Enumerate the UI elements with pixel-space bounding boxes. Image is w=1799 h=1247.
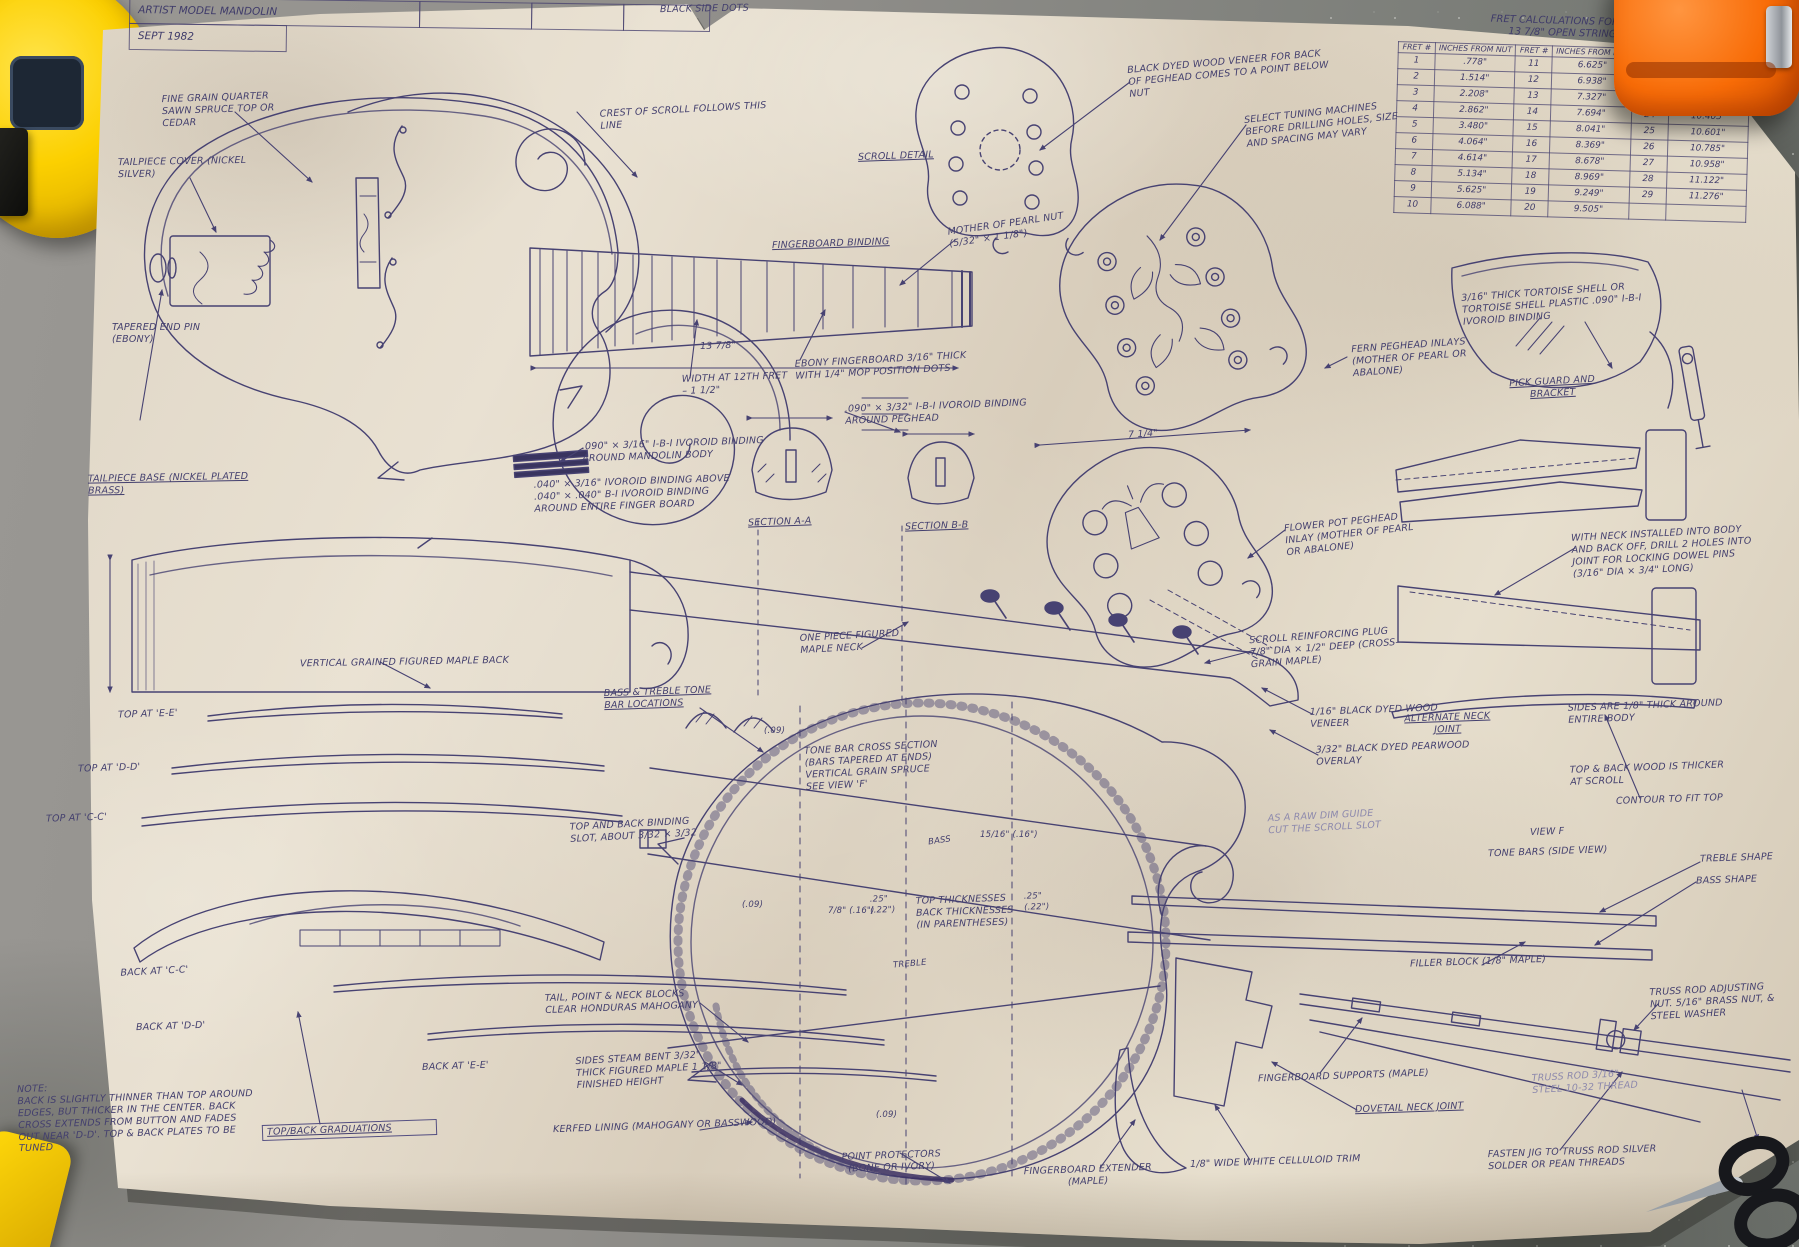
title-block-date: SEPT 1982	[129, 23, 287, 52]
label-tone-bar-locations: BASS & TREBLE TONE BAR LOCATIONS	[604, 684, 730, 712]
orange-tape-measure	[1614, 0, 1799, 116]
label-dim-1516: 15/16" (.16")	[980, 830, 1048, 841]
label-dim-09: (.09)	[742, 900, 782, 911]
label-dim-09: (.09)	[876, 1110, 916, 1121]
label-dim-09: (.09)	[764, 726, 804, 737]
label-fb-extender: FINGERBOARD EXTENDER (MAPLE)	[1018, 1162, 1159, 1191]
tape-measure-hub	[10, 56, 84, 130]
label-tone-bar-section: TONE BAR CROSS SECTION (BARS TAPERED AT …	[804, 738, 951, 793]
label-top-thicknesses: TOP THICKNESSES BACK THICKNESSES (IN PAR…	[915, 892, 1021, 931]
label-point-protectors: POINT PROTECTORS (BONE OR IVORY)	[834, 1148, 950, 1176]
label-fingerboard-binding-spec: .040" × 3/16" IVOROID BINDING ABOVE .040…	[533, 472, 749, 515]
scissors	[1636, 1128, 1799, 1247]
label-note: NOTE: BACK IS SLIGHTLY THINNER THAN TOP …	[17, 1076, 259, 1156]
label-tailpiece-base: TAILPIECE BASE (NICKEL PLATED BRASS)	[88, 470, 278, 497]
label-width-12th-fret: WIDTH AT 12TH FRET – 1 1/2"	[682, 370, 793, 398]
tape-measure-band	[1626, 62, 1776, 78]
label-fine-grain: FINE GRAIN QUARTER SAWN SPRUCE TOP OR CE…	[161, 90, 287, 130]
black-tape-measure	[0, 128, 28, 216]
label-tapered-end-pin: TAPERED END PIN (EBONY)	[112, 322, 207, 346]
label-alt-neck-joint: ALTERNATE NECK JOINT	[1390, 710, 1506, 738]
label-scale-length: 13 7/8"	[700, 339, 760, 353]
label-view-f: VIEW F	[1530, 825, 1590, 839]
label-dim-78: 7/8" (.16")	[828, 906, 890, 917]
label-tailpiece-cover: TAILPIECE COVER (NICKEL SILVER)	[118, 155, 253, 181]
tape-measure-belt-clip	[1766, 6, 1792, 68]
label-truss-nut: TRUSS ROD ADJUSTING NUT. 5/16" BRASS NUT…	[1649, 981, 1776, 1023]
photo-of-blueprint: ARTIST MODEL MANDOLIN SEPT 1982 FRET CAL…	[0, 0, 1799, 1247]
label-black-side-dots: BLACK SIDE DOTS	[660, 2, 790, 16]
title-block: ARTIST MODEL MANDOLIN SEPT 1982	[130, 0, 711, 58]
label-dowel-pins: WITH NECK INSTALLED INTO BODY AND BACK O…	[1571, 523, 1758, 580]
label-thickness-right: .25" (.22")	[1024, 890, 1069, 913]
